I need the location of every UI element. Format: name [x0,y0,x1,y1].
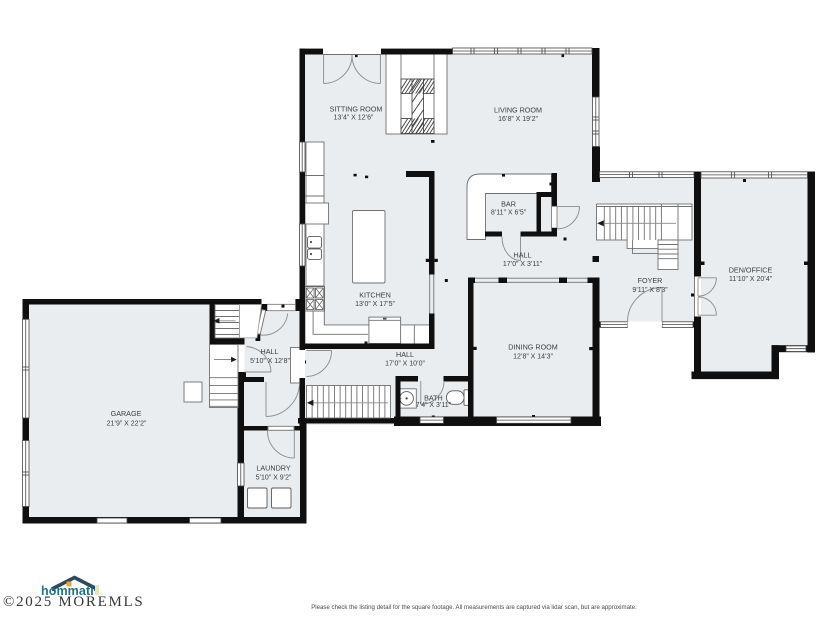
svg-text:HALL: HALL [514,251,532,260]
svg-text:21’9” X 22’2”: 21’9” X 22’2” [107,421,147,428]
svg-text:5’10” X 9’2”: 5’10” X 9’2” [256,475,292,482]
svg-text:BAR: BAR [501,200,516,209]
svg-text:KITCHEN: KITCHEN [359,291,391,300]
svg-text:13’0” X 17’5”: 13’0” X 17’5” [355,301,395,308]
svg-text:17’0” X 10’0”: 17’0” X 10’0” [385,361,425,368]
svg-text:LIVING ROOM: LIVING ROOM [494,106,542,115]
svg-text:12’8” X 14’3”: 12’8” X 14’3” [513,354,553,361]
svg-text:DEN/OFFICE: DEN/OFFICE [729,266,773,275]
svg-text:GARAGE: GARAGE [111,409,142,418]
svg-text:8’11” X 6’5”: 8’11” X 6’5” [491,210,527,217]
svg-text:SITTING ROOM: SITTING ROOM [330,105,383,114]
svg-text:9’11” X 8’3”: 9’11” X 8’3” [632,287,668,294]
svg-text:DINING ROOM: DINING ROOM [508,343,558,352]
svg-text:7’4” X 3’11”: 7’4” X 3’11” [416,402,452,409]
svg-text:FOYER: FOYER [638,276,663,285]
svg-text:16’8” X 19’2”: 16’8” X 19’2” [498,116,538,123]
svg-text:HALL: HALL [396,350,414,359]
svg-text:BATH: BATH [424,393,443,402]
svg-text:17’0” X 3’11”: 17’0” X 3’11” [503,261,543,268]
svg-text:11’10” X 20’4”: 11’10” X 20’4” [729,276,773,283]
svg-text:LAUNDRY: LAUNDRY [256,464,290,473]
svg-text:5’10” X 12’8”: 5’10” X 12’8” [250,358,290,365]
svg-text:13’4” X 12’6”: 13’4” X 12’6” [334,115,374,122]
svg-text:HALL: HALL [261,347,279,356]
